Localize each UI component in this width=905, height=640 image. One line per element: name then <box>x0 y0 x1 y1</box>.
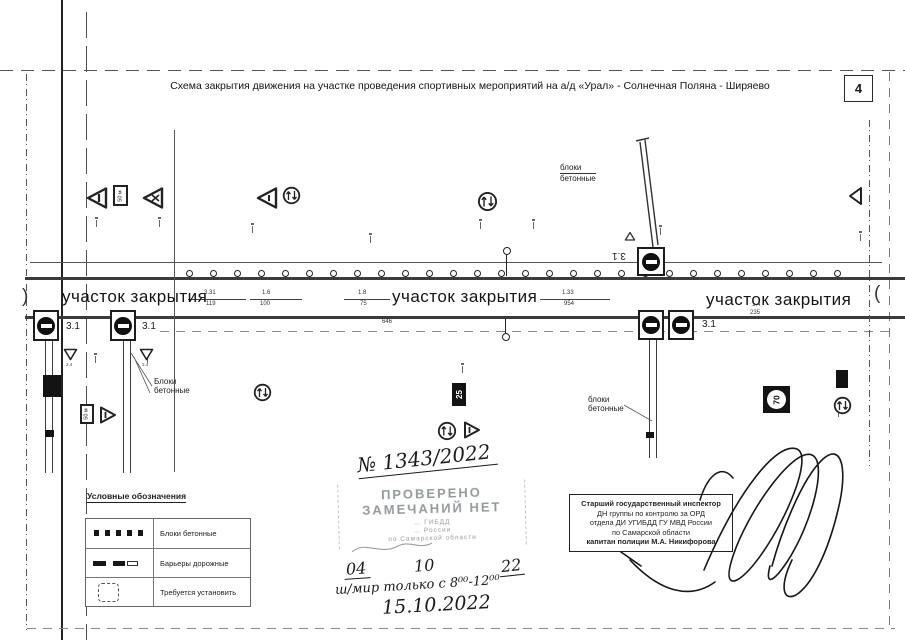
handwritten-year: 22 <box>498 555 525 578</box>
legend-label: Барьеры дорожные <box>154 549 250 577</box>
warning-triangle-icon <box>99 405 117 425</box>
barrier-post-stem <box>506 255 507 276</box>
barrier-post-marker <box>503 247 511 255</box>
road-edge-line <box>30 262 882 263</box>
concrete-block <box>426 270 433 277</box>
concrete-blocks-symbol <box>86 519 154 548</box>
inspector-name-line: капитан полиции М.А. Никифорова <box>572 537 730 547</box>
road-barrier-block <box>43 375 61 397</box>
sign-code-label: 2.4 <box>66 362 72 367</box>
concrete-blocks-row <box>186 270 876 278</box>
label-line: бетонные <box>560 174 596 183</box>
to-be-installed-symbol <box>86 578 154 606</box>
concrete-blocks-label-right: блоки бетонные <box>588 395 624 413</box>
road-continuation-right: ( <box>874 283 880 305</box>
two-way-circle-sign-icon <box>437 421 457 441</box>
legend-table: Блоки бетонные Барьеры дорожные Требуетс… <box>85 518 251 607</box>
dimension-label: 1.33 <box>562 290 574 296</box>
concrete-block <box>330 270 337 277</box>
road-continuation-left: ) <box>22 286 28 308</box>
concrete-block <box>186 270 193 277</box>
dimension-line <box>250 299 302 300</box>
distance-plaque-50m: 50 м <box>80 404 94 424</box>
road-centerline-dashed <box>160 331 890 332</box>
concrete-block <box>810 270 817 277</box>
concrete-block <box>570 270 577 277</box>
concrete-block <box>378 270 385 277</box>
label-line: бетонные <box>588 404 624 413</box>
closure-section-label-3: участок закрытия <box>706 290 851 310</box>
no-entry-sign-3-1 <box>638 310 664 340</box>
concrete-block <box>354 270 361 277</box>
concrete-block <box>834 270 841 277</box>
inspector-title-line: отдела ДИ УГИБДД ГУ МВД России <box>572 518 730 528</box>
approval-stamp: ПРОВЕРЕНО ЗАМЕЧАНИЙ НЕТ … ГИБДД … России… <box>337 480 527 550</box>
warning-triangle-icon <box>86 186 108 210</box>
plaque-50m-text: 50 м <box>118 190 124 201</box>
concrete-blocks-label-left: Блоки бетонные <box>154 377 190 395</box>
page-title: Схема закрытия движения на участке прове… <box>105 80 835 92</box>
legend-row: Барьеры дорожные <box>86 548 250 577</box>
concrete-block <box>258 270 265 277</box>
two-way-circle-sign-icon <box>282 186 301 205</box>
scan-fold-line <box>61 0 63 640</box>
road-barrier-block <box>836 370 848 388</box>
concrete-block <box>210 270 217 277</box>
page-right-border <box>889 72 890 630</box>
side-road-line <box>656 340 657 458</box>
concrete-blocks-label-top: блоки бетонные <box>560 163 596 183</box>
sign-code-label: 3.1 <box>702 319 716 330</box>
dimension-label: 1.6 <box>262 290 270 296</box>
concrete-block <box>714 270 721 277</box>
page-number-box: 4 <box>844 75 873 102</box>
dimension-label: 646 <box>382 319 392 325</box>
concrete-block <box>666 270 673 277</box>
two-way-circle-sign-icon <box>833 396 852 415</box>
tick-mark <box>159 220 160 227</box>
label-line: блоки <box>560 163 596 174</box>
warning-triangle-icon <box>848 186 863 206</box>
plaque-50m-text: 50 м <box>84 408 90 419</box>
handwritten-month: 10 <box>413 555 435 575</box>
sign-code-label: 3.1 <box>142 321 156 332</box>
concrete-block <box>594 270 601 277</box>
km-25-text: 25 <box>455 390 464 399</box>
side-road-line <box>123 341 124 473</box>
tick-mark <box>370 236 371 243</box>
concrete-block <box>522 270 529 277</box>
closure-section-label-2: участок закрытия <box>392 287 537 307</box>
tick-mark <box>462 366 463 373</box>
page-bottom-border <box>27 628 895 629</box>
dimension-line <box>344 299 390 300</box>
dimension-label: 954 <box>564 301 574 307</box>
scanned-road-closure-scheme: Схема закрытия движения на участке прове… <box>0 0 905 640</box>
concrete-block <box>762 270 769 277</box>
concrete-block <box>282 270 289 277</box>
km-post-sign-25: 25 <box>452 383 466 406</box>
concrete-block <box>690 270 697 277</box>
dimension-label: 1.4 <box>752 302 760 308</box>
inspector-signature-block: Старший государственный инспектор ДН гру… <box>569 494 733 552</box>
concrete-block <box>498 270 505 277</box>
label-line: бетонные <box>154 386 190 395</box>
match-line <box>869 120 870 466</box>
side-road-line <box>45 341 46 473</box>
concrete-block <box>618 270 625 277</box>
handwritten-day: 04 <box>343 558 371 580</box>
tick-mark <box>860 234 861 241</box>
tick-mark <box>660 228 661 235</box>
road-barrier-block <box>646 432 654 438</box>
distance-plaque-50m: 50 м <box>113 185 128 206</box>
tick-mark <box>95 356 96 363</box>
no-entry-sign-3-1 <box>33 310 59 341</box>
two-way-circle-sign-icon <box>253 383 272 402</box>
inspector-title-line: ДН группы по контролю за ОРД <box>572 509 730 519</box>
sign-code-label: 2.4 <box>142 362 148 367</box>
handwritten-doc-number: № 1343/2022 <box>356 439 498 479</box>
warning-triangle-icon <box>463 420 481 440</box>
km-post-sign-70: 70 <box>763 386 790 413</box>
yield-sign-icon <box>63 348 78 361</box>
dimension-label: 100 <box>260 301 270 307</box>
concrete-block <box>546 270 553 277</box>
barrier-post-marker <box>502 333 510 341</box>
legend-heading: Условные обозначения <box>87 491 186 503</box>
label-line: Блоки <box>154 377 190 386</box>
km-70-text: 70 <box>772 395 782 404</box>
dimension-line <box>540 299 610 300</box>
no-entry-sign-3-1 <box>637 247 665 276</box>
inspector-title-line: Старший государственный инспектор <box>572 499 730 509</box>
tick-mark <box>252 226 253 233</box>
small-triangle-icon <box>624 231 636 242</box>
dimension-label: 235 <box>750 310 760 316</box>
warning-triangle-cross-icon <box>142 186 164 210</box>
concrete-block <box>234 270 241 277</box>
road-barrier-block <box>45 430 54 437</box>
road-line-lower <box>25 316 905 319</box>
page-top-border <box>0 70 905 71</box>
side-road-line <box>130 341 131 473</box>
legend-row: Требуется установить <box>86 577 250 606</box>
sign-code-label: 3.1 <box>612 250 626 261</box>
inspector-title-line: по Самарской области <box>572 528 730 538</box>
closure-section-label-1: участок закрытия <box>62 287 207 307</box>
concrete-block <box>402 270 409 277</box>
dimension-label: 1.8 <box>358 290 366 296</box>
page-left-border <box>26 74 27 630</box>
sign-code-label: 3.1 <box>66 321 80 332</box>
tick-mark <box>96 220 97 227</box>
concrete-block <box>474 270 481 277</box>
side-road-line <box>52 341 53 473</box>
label-line: блоки <box>588 395 624 404</box>
tick-mark <box>533 222 534 229</box>
dimension-label: 119 <box>206 301 216 307</box>
handwritten-date: 15.10.2022 <box>381 591 491 619</box>
side-road-line <box>649 340 650 458</box>
dimension-label: 75 <box>360 301 367 307</box>
concrete-block <box>738 270 745 277</box>
concrete-block <box>306 270 313 277</box>
no-entry-sign-3-1 <box>668 310 694 340</box>
warning-triangle-icon <box>256 186 278 210</box>
concrete-block <box>786 270 793 277</box>
page-number: 4 <box>855 81 862 96</box>
two-way-circle-sign-icon <box>477 191 498 212</box>
concrete-block <box>450 270 457 277</box>
legend-label: Требуется установить <box>154 578 250 606</box>
dimension-label: 3.31 <box>204 290 216 296</box>
legend-row: Блоки бетонные <box>86 519 250 548</box>
no-entry-sign-3-1 <box>110 310 136 341</box>
barrier-post-stem <box>505 319 506 333</box>
yield-sign-icon <box>139 348 154 361</box>
legend-label: Блоки бетонные <box>154 519 250 548</box>
road-barriers-symbol <box>86 549 154 577</box>
tick-mark <box>480 222 481 229</box>
